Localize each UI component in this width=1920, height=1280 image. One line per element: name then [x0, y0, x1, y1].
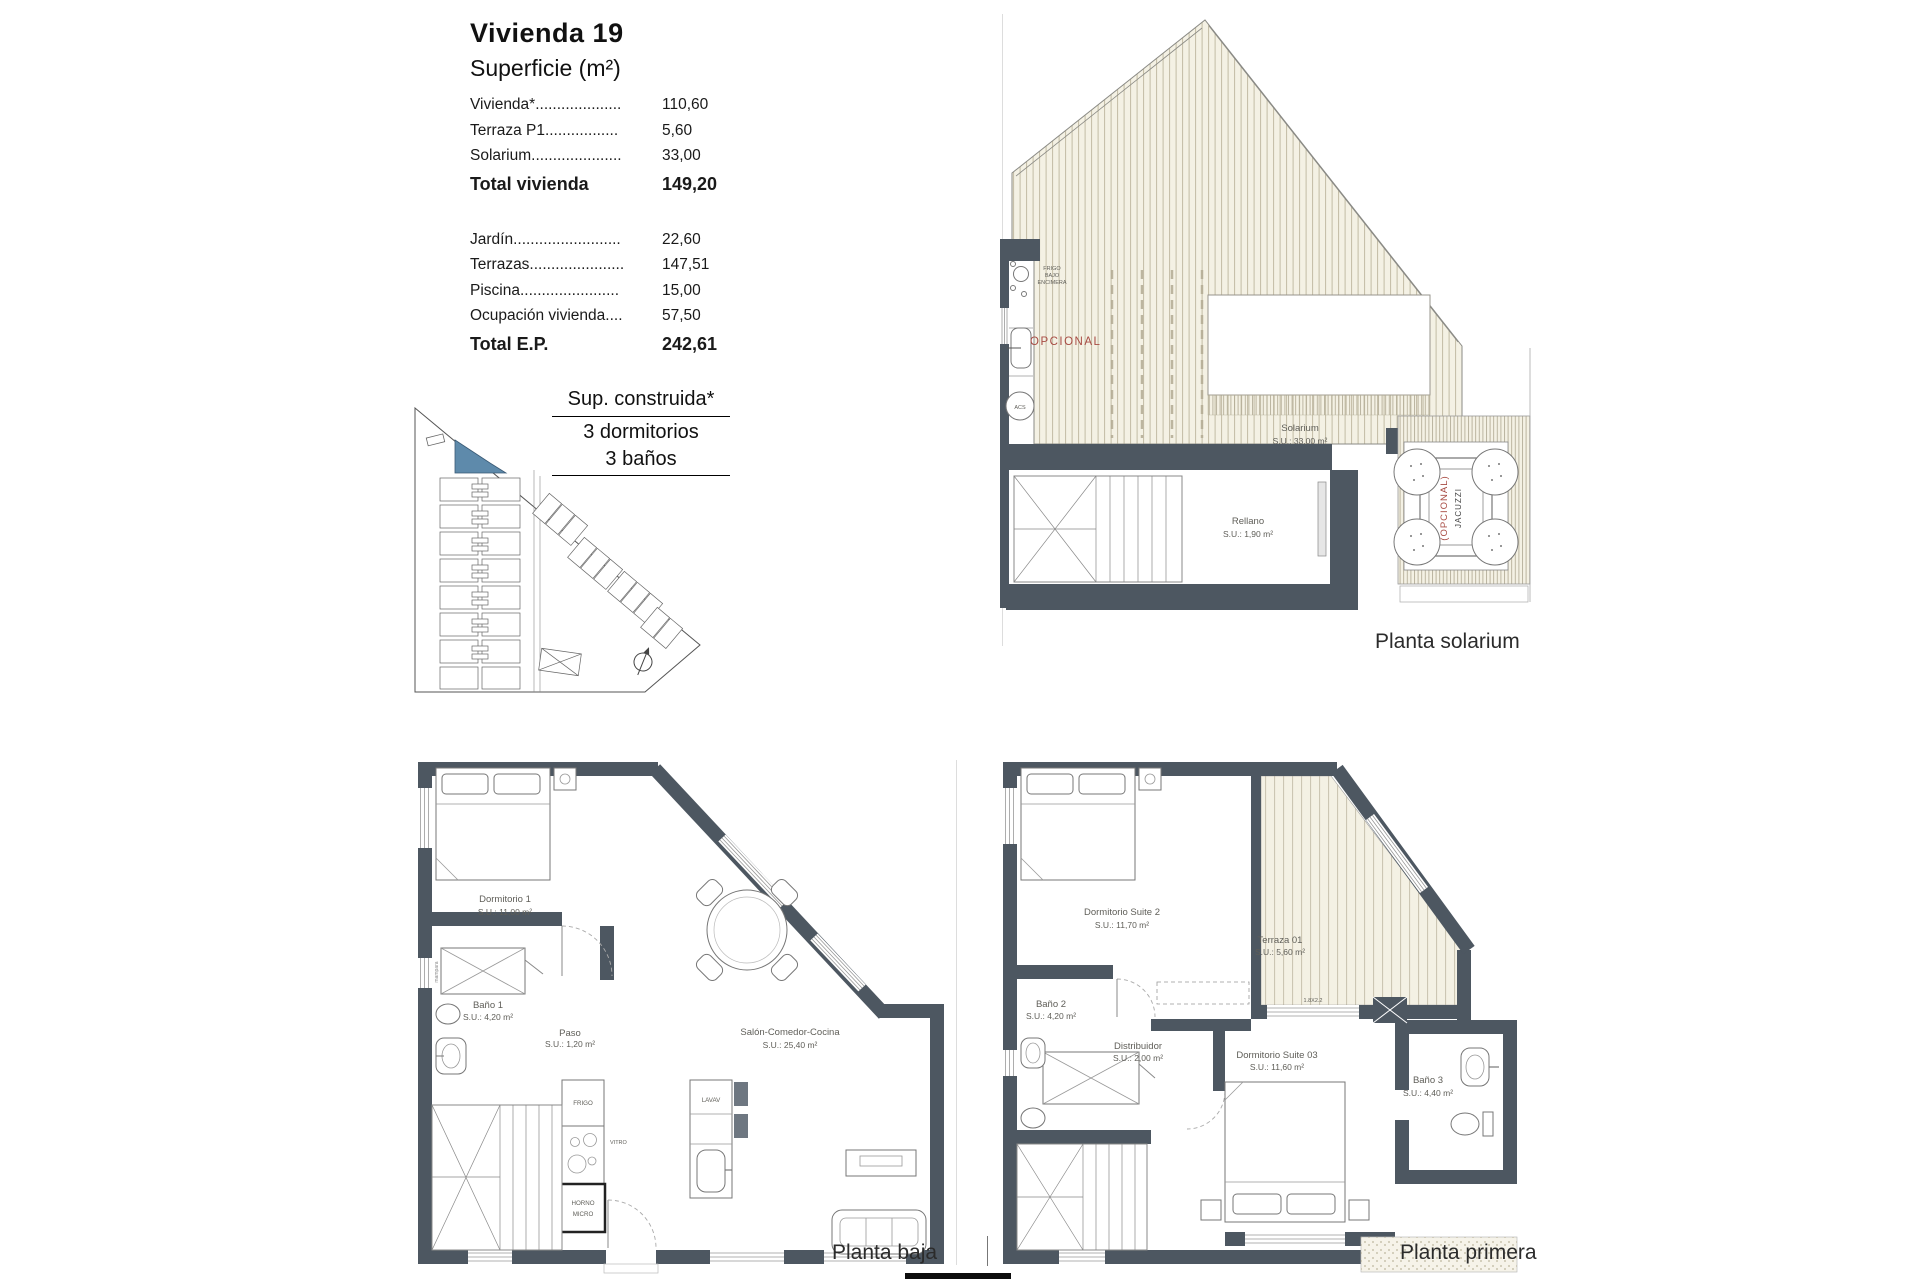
summary-subtitle: Superficie (m²) [470, 55, 740, 82]
kitchen-sink-icon [697, 1150, 725, 1192]
svg-text:S.U.: 11,00 m²: S.U.: 11,00 m² [478, 907, 532, 917]
table-row: Jardín.........................22,60 [470, 227, 740, 253]
table-row: Terrazas......................147,51 [470, 252, 740, 278]
dormitorio1-label: Dormitorio 1 [479, 894, 531, 905]
stairs [1017, 1144, 1147, 1250]
table-row: Solarium.....................33,00 [470, 143, 740, 169]
plan-primera: 1.8X2.2 Dormitorio Suite 2 S.U.: 11,70 m… [995, 752, 1535, 1280]
highlighted-unit [455, 440, 506, 473]
distribuidor-label: Distribuidor [1114, 1041, 1162, 1052]
toilet-icon [1021, 1108, 1045, 1128]
svg-text:S.U.: 2,00 m²: S.U.: 2,00 m² [1113, 1053, 1163, 1063]
caption-baja: Planta baja [832, 1241, 937, 1265]
paso-label: Paso [559, 1028, 581, 1039]
salon-label: Salón-Comedor-Cocina [740, 1027, 840, 1038]
rellano: Rellano S.U.: 1,90 m² [1223, 482, 1326, 556]
svg-text:S.U.: 4,20 m²: S.U.: 4,20 m² [463, 1012, 513, 1022]
toilet-icon [1451, 1112, 1493, 1136]
bed [436, 768, 576, 880]
jacuzzi-opcional-label: (OPCIONAL) [1439, 475, 1450, 540]
svg-text:MICRO: MICRO [573, 1211, 594, 1218]
kitchenette-label: FRIGO [1043, 266, 1061, 272]
svg-text:HORNO: HORNO [571, 1200, 594, 1207]
bed [1021, 768, 1161, 880]
svg-text:S.U.: 11,60 m²: S.U.: 11,60 m² [1250, 1062, 1304, 1072]
caption-tick [987, 1236, 988, 1266]
bano1-label: Baño 1 [473, 1000, 503, 1011]
wall-window [1000, 308, 1009, 344]
svg-text:S.U.: 4,20 m²: S.U.: 4,20 m² [1026, 1011, 1076, 1021]
opcional-label: OPCIONAL [1030, 336, 1101, 348]
nightstand [554, 768, 576, 790]
nightstand [1349, 1200, 1369, 1220]
entry-door [604, 1200, 658, 1273]
sink-icon [1021, 1038, 1045, 1068]
wardrobe-dashed [1157, 982, 1249, 1004]
suite3-label: Dormitorio Suite 03 [1236, 1050, 1317, 1061]
tv-console [846, 1150, 916, 1176]
shower: mampara [434, 948, 543, 994]
sink-icon [436, 1038, 466, 1074]
caption-solarium: Planta solarium [1375, 630, 1520, 654]
door-arc [1113, 965, 1155, 1017]
stairs [1014, 476, 1182, 582]
svg-text:S.U.: 25,40 m²: S.U.: 25,40 m² [763, 1040, 818, 1050]
table-row: Piscina.......................15,00 [470, 278, 740, 304]
bed [1201, 1082, 1369, 1222]
caption-primera: Planta primera [1400, 1241, 1537, 1265]
corner-unit [1373, 997, 1407, 1023]
svg-text:ENCIMERA: ENCIMERA [1037, 280, 1066, 286]
nightstand [1201, 1200, 1221, 1220]
plan-baja: Dormitorio 1 S.U.: 11,00 m² mampara Baño… [410, 752, 955, 1280]
radiator-icon [1318, 482, 1326, 556]
svg-text:S.U.: 1,90 m²: S.U.: 1,90 m² [1223, 529, 1273, 539]
mampara-label: mampara [434, 961, 440, 982]
solarium-room-label: Solarium [1281, 423, 1319, 434]
total-ep-row: Total E.P.242,61 [470, 329, 740, 359]
rellano-label: Rellano [1232, 516, 1264, 527]
lavav-label: LAVAV [702, 1097, 721, 1104]
plan-solarium: ACS FRIGO BAJO ENCIMERA OPCIONAL Solariu… [1000, 8, 1535, 653]
acs-label: ACS [1014, 405, 1026, 411]
page-title: Vivienda 19 [470, 18, 740, 49]
bano3-label: Baño 3 [1413, 1075, 1443, 1086]
table-row: Ocupación vivienda....57,50 [470, 303, 740, 329]
bano2-label: Baño 2 [1036, 999, 1066, 1010]
svg-text:BAJO: BAJO [1045, 273, 1060, 279]
kitchen: FRIGO VITRO HORNO MICRO LAVAV [561, 1080, 748, 1232]
sink-icon [1461, 1048, 1499, 1086]
total-vivienda-row: Total vivienda149,20 [470, 169, 740, 199]
svg-text:S.U.: 11,70 m²: S.U.: 11,70 m² [1095, 920, 1149, 930]
summary-panel: Vivienda 19 Superficie (m²) Vivienda*...… [470, 18, 740, 359]
sink-icon [1014, 267, 1029, 282]
terraza-label: Terraza 01 [1258, 935, 1303, 946]
svg-text:S.U.: 4,40 m²: S.U.: 4,40 m² [1403, 1088, 1453, 1098]
suite2-label: Dormitorio Suite 2 [1084, 907, 1160, 918]
table-row: Vivienda*....................110,60 [470, 92, 740, 118]
site-plan [410, 400, 710, 700]
roof-eave [1208, 395, 1430, 415]
table-row: Terraza P1.................5,60 [470, 118, 740, 144]
window-size-label: 1.8X2.2 [1304, 998, 1323, 1004]
door-arc [1187, 1091, 1225, 1129]
page-bar [905, 1273, 1011, 1279]
stairs [432, 1105, 562, 1250]
jacuzzi-label: JACUZZI [1454, 488, 1463, 528]
roof-void [1208, 295, 1430, 395]
plan-sheet: Vivienda 19 Superficie (m²) Vivienda*...… [0, 0, 1920, 1280]
svg-text:S.U.: 1,20 m²: S.U.: 1,20 m² [545, 1039, 595, 1049]
axis-line [956, 760, 957, 1265]
svg-text:S.U.: 5,60 m²: S.U.: 5,60 m² [1255, 947, 1305, 957]
horno-micro [561, 1184, 605, 1232]
frigo-label: FRIGO [573, 1100, 593, 1107]
svg-text:S.U.: 33,00 m²: S.U.: 33,00 m² [1273, 436, 1328, 446]
toilet-icon [436, 1004, 460, 1024]
vitro-label: VITRO [610, 1140, 628, 1146]
nightstand [1139, 768, 1161, 790]
